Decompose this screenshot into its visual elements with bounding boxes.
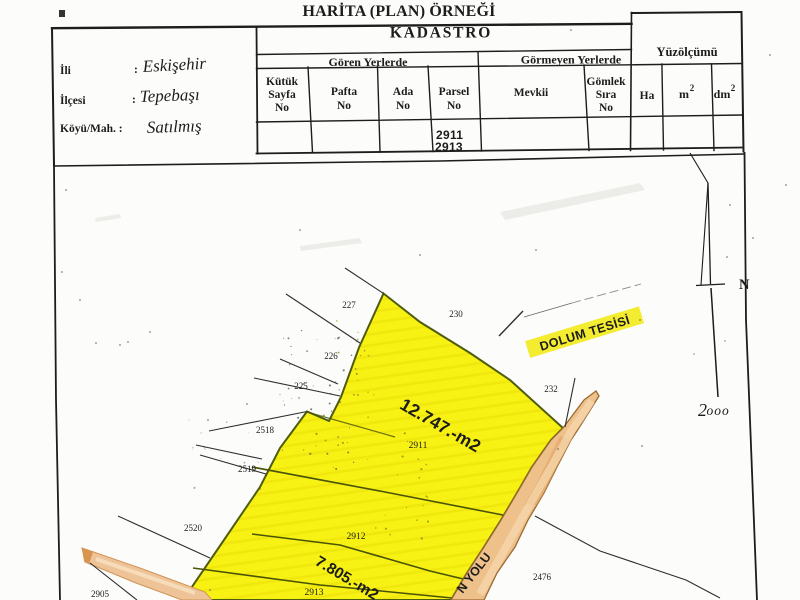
svg-text:2905: 2905	[91, 589, 110, 599]
svg-text:Tepebaşı: Tepebaşı	[139, 85, 199, 106]
svg-text:Gömlek: Gömlek	[587, 76, 627, 88]
svg-text:KADASTRO: KADASTRO	[390, 25, 492, 42]
svg-text:Ha: Ha	[640, 90, 655, 102]
svg-text:No: No	[447, 100, 461, 112]
svg-text:Ada: Ada	[393, 86, 414, 98]
svg-text:2911: 2911	[409, 441, 428, 451]
svg-text:2519: 2519	[238, 464, 257, 474]
svg-text:HARİTA (PLAN) ÖRNEĞİ: HARİTA (PLAN) ÖRNEĞİ	[302, 1, 495, 20]
svg-text:Yüzölçümü: Yüzölçümü	[656, 45, 717, 59]
svg-text::: :	[132, 94, 136, 106]
svg-text:m: m	[679, 87, 689, 101]
svg-text:2ooo: 2ooo	[698, 400, 730, 420]
svg-text:Köyü/Mah. :: Köyü/Mah. :	[60, 123, 123, 135]
svg-text:2913: 2913	[435, 140, 463, 154]
svg-text:227: 227	[342, 300, 356, 310]
svg-text:Eskişehir: Eskişehir	[141, 54, 207, 76]
svg-text:Gören Yerlerde: Gören Yerlerde	[329, 55, 409, 69]
svg-text:Sıra: Sıra	[596, 89, 617, 101]
svg-text:Kütük: Kütük	[266, 76, 299, 88]
svg-text:Satılmış: Satılmış	[146, 116, 202, 137]
svg-text:2912: 2912	[347, 532, 366, 542]
svg-text:No: No	[337, 100, 351, 112]
svg-text:2520: 2520	[184, 523, 203, 533]
svg-text:226: 226	[324, 351, 338, 361]
svg-text:2: 2	[690, 83, 695, 93]
svg-text:230: 230	[449, 309, 463, 319]
svg-text:2913: 2913	[305, 588, 324, 598]
svg-text:2: 2	[731, 83, 736, 93]
svg-text:N: N	[739, 277, 750, 293]
svg-text:dm: dm	[714, 87, 731, 101]
svg-text:Parsel: Parsel	[439, 86, 470, 98]
svg-text:No: No	[275, 102, 289, 114]
svg-text:2518: 2518	[256, 425, 275, 435]
svg-text:Görmeyen Yerlerde: Görmeyen Yerlerde	[521, 53, 622, 67]
svg-text:225: 225	[294, 381, 308, 391]
svg-text::: :	[134, 64, 138, 76]
svg-text:No: No	[599, 102, 613, 114]
svg-text:İli: İli	[60, 63, 72, 77]
svg-text:Mevkii: Mevkii	[514, 87, 549, 99]
svg-text:Sayfa: Sayfa	[268, 89, 296, 101]
svg-text:2476: 2476	[533, 572, 552, 582]
svg-text:İlçesi: İlçesi	[60, 93, 86, 107]
svg-text:Pafta: Pafta	[331, 86, 357, 98]
svg-text:No: No	[396, 100, 410, 112]
svg-text:232: 232	[544, 384, 558, 394]
